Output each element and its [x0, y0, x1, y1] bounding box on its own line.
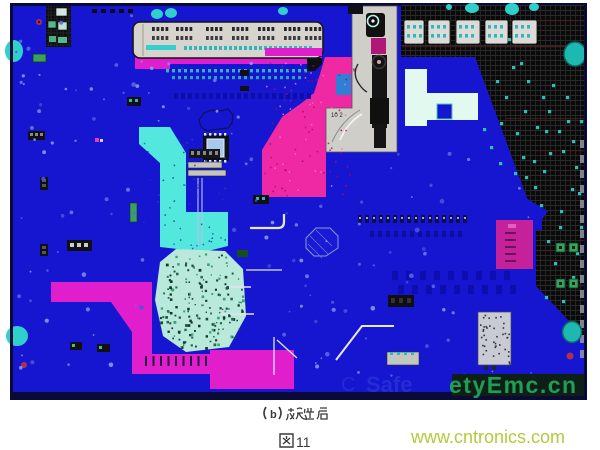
svg-text:b: b — [270, 409, 277, 421]
svg-text:Safe: Safe — [366, 372, 412, 397]
svg-text:10 2: 10 2 — [331, 113, 343, 119]
svg-text:C: C — [341, 374, 355, 396]
svg-text:etyEmc.cn: etyEmc.cn — [449, 372, 578, 398]
svg-text:www.cntronics.com: www.cntronics.com — [410, 427, 565, 447]
svg-text:11: 11 — [296, 434, 311, 450]
